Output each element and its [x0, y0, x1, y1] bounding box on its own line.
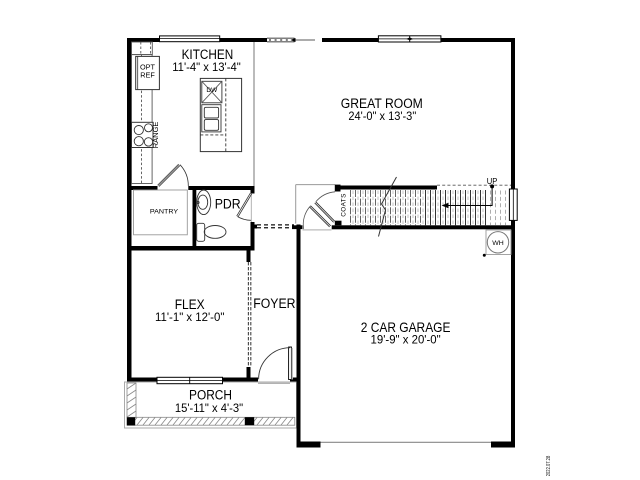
svg-text:REF: REF: [140, 71, 155, 80]
svg-text:PORCH: PORCH: [189, 388, 232, 403]
svg-text:PANTRY: PANTRY: [150, 208, 179, 215]
svg-text:15'-11" x 4'-3": 15'-11" x 4'-3": [175, 403, 243, 415]
svg-text:2022.07.28: 2022.07.28: [546, 456, 552, 477]
svg-text:RANGE: RANGE: [151, 122, 160, 149]
svg-text:PDR: PDR: [215, 196, 241, 212]
svg-text:FOYER: FOYER: [253, 296, 295, 311]
svg-text:11'-4" x 13'-4": 11'-4" x 13'-4": [172, 62, 241, 74]
svg-text:19'-9" x 20'-0": 19'-9" x 20'-0": [371, 333, 441, 347]
svg-text:GREAT ROOM: GREAT ROOM: [341, 96, 423, 111]
svg-text:FLEX: FLEX: [175, 297, 205, 312]
svg-text:11'-1" x 12'-0": 11'-1" x 12'-0": [155, 312, 224, 324]
svg-text:DW: DW: [206, 87, 218, 94]
svg-text:24'-0" x 13'-3": 24'-0" x 13'-3": [348, 111, 416, 123]
svg-text:WH: WH: [492, 240, 504, 247]
svg-text:COATS: COATS: [341, 193, 348, 217]
svg-text:KITCHEN: KITCHEN: [182, 47, 234, 62]
